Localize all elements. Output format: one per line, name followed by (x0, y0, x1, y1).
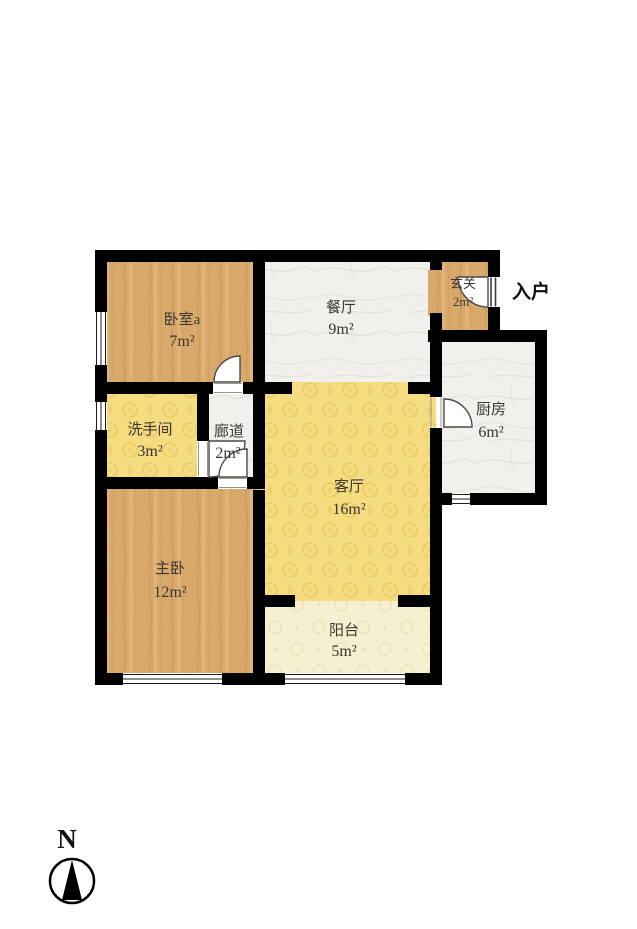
label-master-bedroom-area: 12m² (153, 584, 186, 601)
label-master-bedroom-name: 主卧 (155, 560, 185, 577)
label-bathroom-area: 3m² (137, 443, 162, 460)
label-kitchen-name: 厨房 (476, 401, 506, 418)
compass-needle-icon (62, 860, 82, 900)
label-living-area: 16m² (332, 501, 365, 518)
room-master-bedroom-floor (101, 483, 259, 679)
label-corridor-name: 廊道 (214, 423, 244, 440)
label-bathroom-name: 洗手间 (127, 421, 172, 438)
window-bathroom (95, 402, 107, 430)
window-kitchen (452, 493, 470, 505)
window-master-bedroom (123, 673, 222, 685)
floor-plan-svg: 卧室a 7m² 餐厅 9m² 玄关 2m² 厨房 6m² 洗手间 3m² 廊道 … (0, 0, 637, 929)
label-dining-name: 餐厅 (326, 299, 356, 316)
label-bedroom-a-area: 7m² (169, 333, 194, 350)
threshold-entry (488, 277, 500, 307)
compass: N (50, 824, 94, 903)
label-foyer-name: 玄关 (450, 276, 476, 291)
floor-plan-page: 卧室a 7m² 餐厅 9m² 玄关 2m² 厨房 6m² 洗手间 3m² 廊道 … (0, 0, 637, 929)
label-balcony-area: 5m² (331, 643, 356, 660)
compass-north-label: N (57, 824, 77, 854)
window-balcony (285, 673, 405, 685)
foyer-passage-floor (428, 270, 442, 316)
label-kitchen-area: 6m² (478, 424, 503, 441)
label-foyer-area: 2m² (453, 294, 474, 309)
label-bedroom-a-name: 卧室a (164, 311, 201, 328)
window-bedroom-a (95, 312, 107, 365)
label-dining-area: 9m² (328, 321, 353, 338)
label-balcony-name: 阳台 (329, 622, 359, 639)
entry-label: 入户 (512, 280, 550, 303)
room-balcony-floor (259, 601, 436, 679)
label-corridor-area: 2m² (215, 445, 240, 462)
label-living-name: 客厅 (334, 478, 364, 495)
